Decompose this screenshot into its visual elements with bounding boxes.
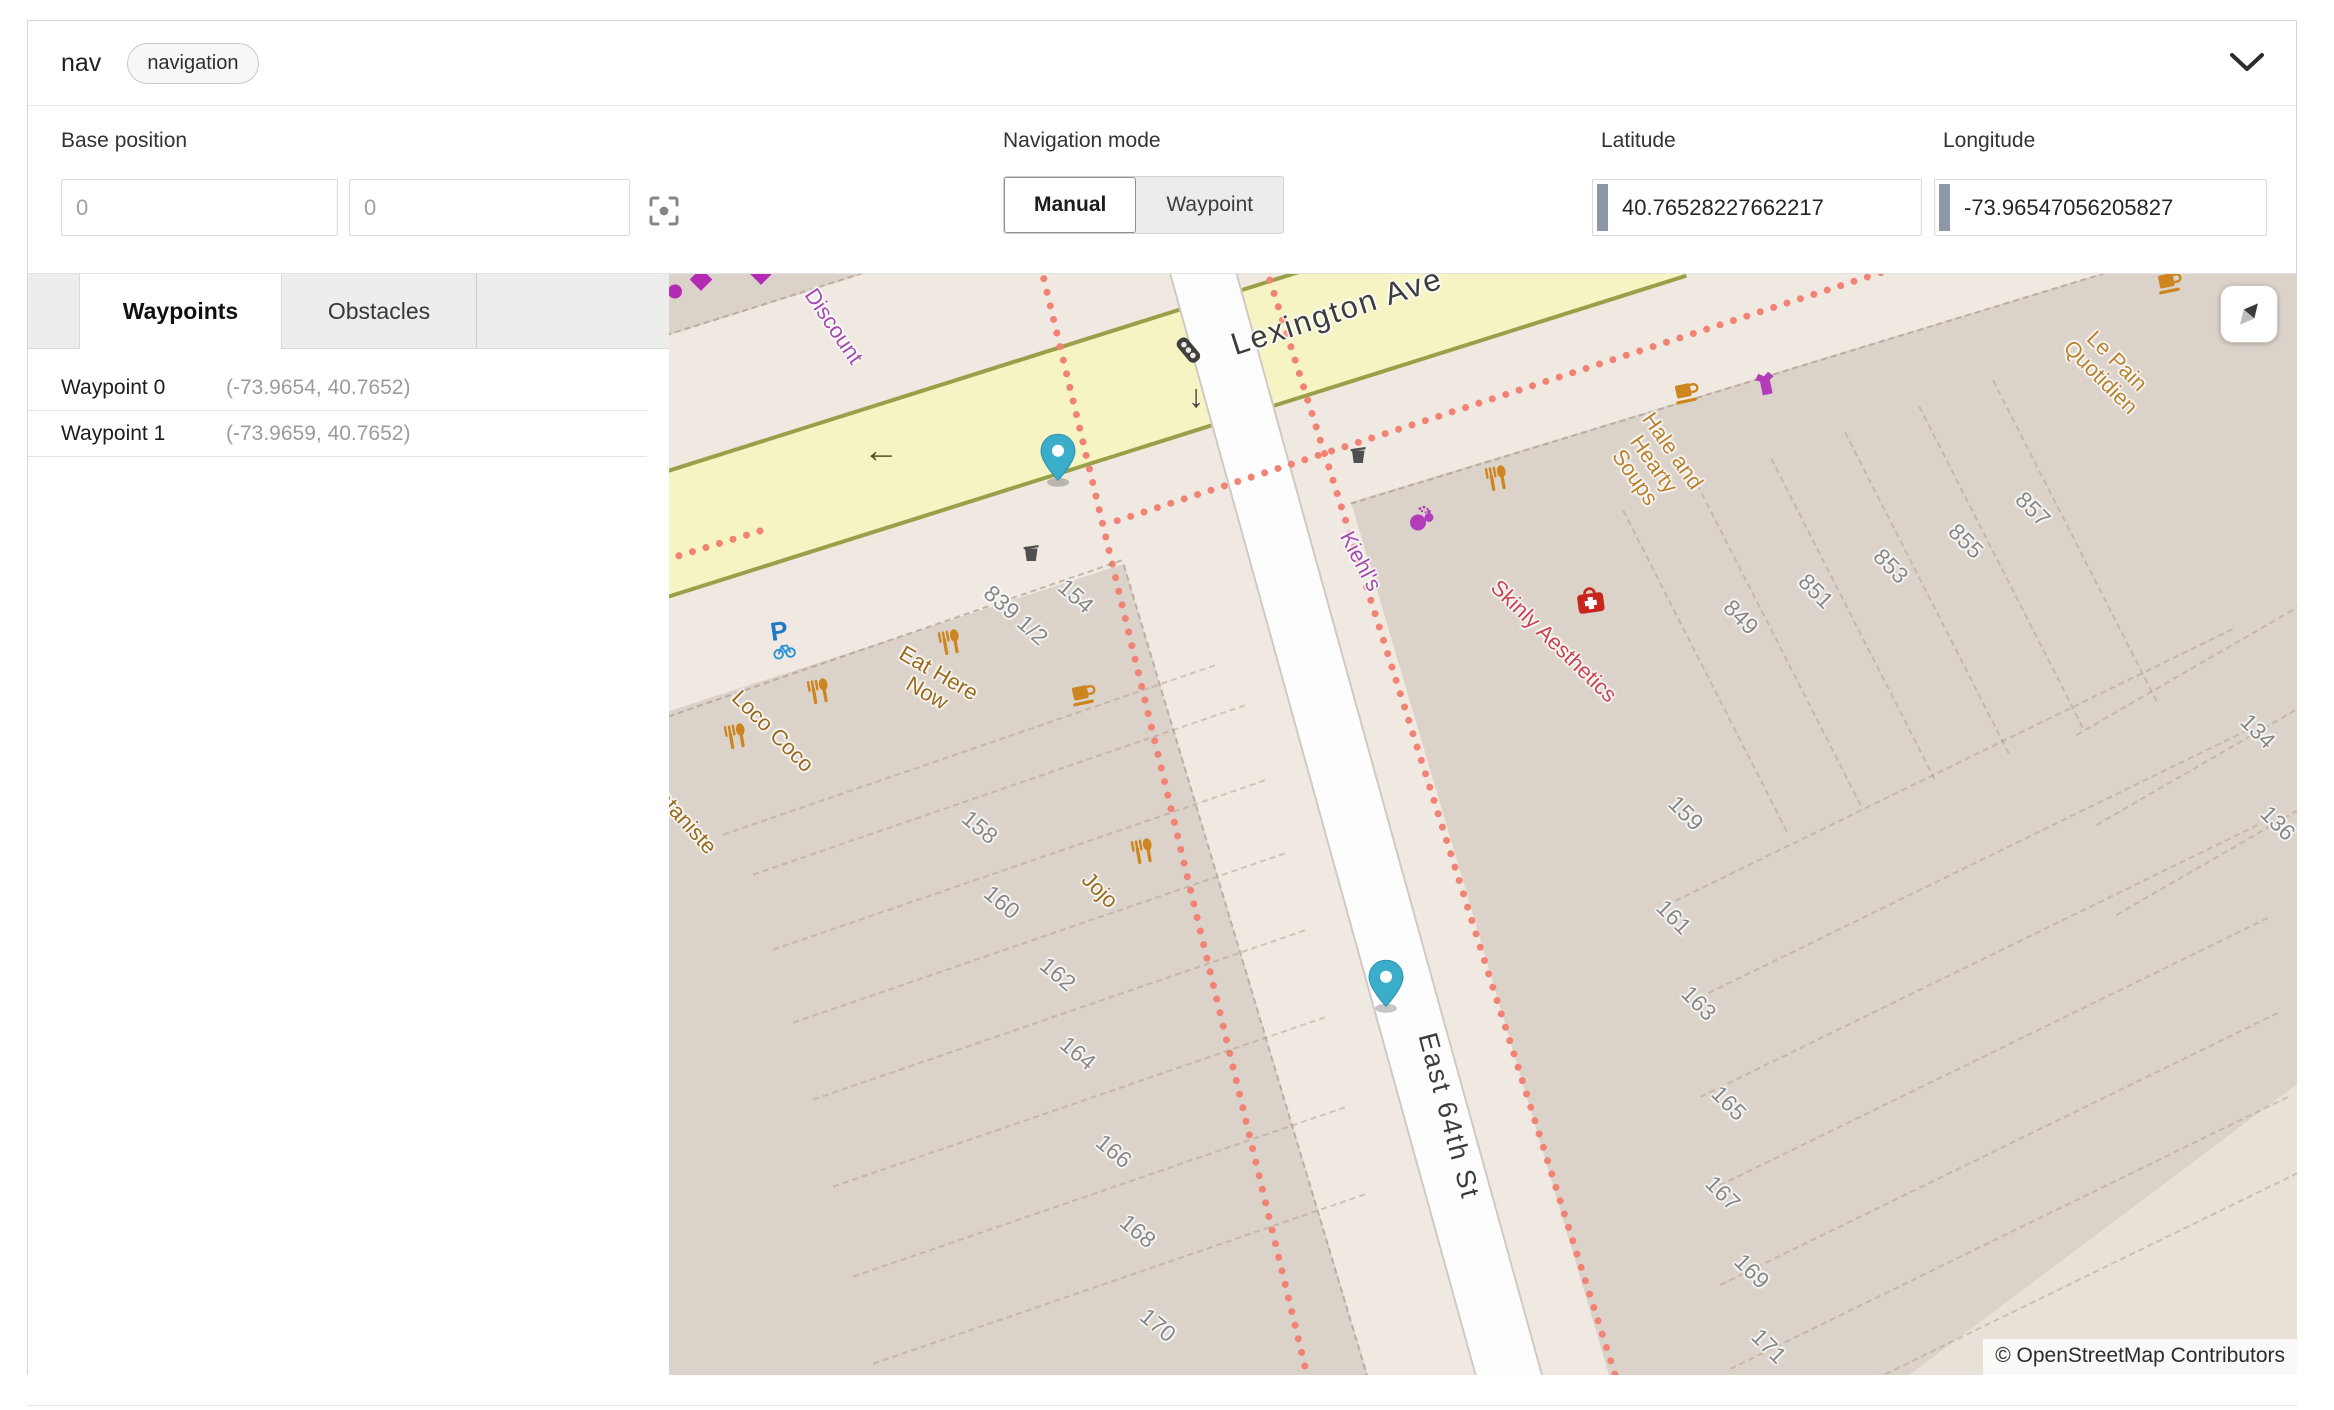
navigation-mode-toggle: Manual Waypoint — [1003, 176, 1284, 234]
restaurant-icon — [717, 719, 753, 759]
waypoint-list-item[interactable]: Waypoint 1 (-73.9659, 40.7652) — [28, 411, 647, 457]
restaurant-icon — [1478, 461, 1514, 501]
chevron-down-icon — [2229, 52, 2265, 74]
cosmetics-icon — [1408, 505, 1440, 538]
oneway-arrow-icon: ↓ — [1188, 380, 1204, 412]
map-canvas[interactable]: Lexington AveEast 64th StDiscountKiehl's… — [669, 274, 2297, 1375]
tab-waypoints[interactable]: Waypoints — [79, 274, 282, 349]
tab-spacer — [28, 274, 79, 348]
base-position-x-input[interactable] — [62, 180, 337, 235]
crosshair-icon — [647, 194, 681, 228]
card-header: nav navigation — [28, 21, 2296, 106]
compass-button[interactable] — [2220, 285, 2278, 343]
navigation-badge: navigation — [127, 43, 258, 84]
toolbar: Base position Navigation mode — [28, 106, 2296, 274]
latitude-label: Latitude — [1601, 129, 1676, 153]
navigation-mode-label: Navigation mode — [1003, 129, 1161, 153]
content-row: Waypoints Obstacles Waypoint 0 (-73.9654… — [28, 274, 2296, 1375]
waste-basket-icon — [1021, 544, 1041, 569]
shop-marker-icon — [748, 274, 774, 292]
shop-marker-icon — [688, 274, 714, 298]
longitude-field[interactable] — [1934, 179, 2267, 236]
waypoint-name: Waypoint 0 — [61, 376, 226, 400]
shop-marker-icon — [669, 284, 683, 305]
base-position-y-input[interactable] — [350, 180, 629, 235]
latitude-field[interactable] — [1592, 179, 1922, 236]
nav-panel-page: nav navigation Base position — [0, 0, 2334, 1410]
tab-obstacles[interactable]: Obstacles — [282, 274, 477, 348]
latitude-drag-handle[interactable] — [1597, 184, 1608, 231]
restaurant-icon — [800, 674, 836, 714]
cafe-icon — [1068, 680, 1102, 716]
svg-text:P: P — [768, 617, 789, 647]
restaurant-icon — [1124, 834, 1160, 874]
next-panel-divider — [27, 1405, 2298, 1406]
page-title: nav — [61, 49, 101, 78]
oneway-arrow-icon: ← — [863, 432, 899, 468]
longitude-drag-handle[interactable] — [1939, 184, 1950, 231]
latitude-input[interactable] — [1608, 180, 1921, 235]
waypoint-name: Waypoint 1 — [61, 422, 226, 446]
nav-card: nav navigation Base position — [27, 20, 2297, 1375]
set-base-position-button[interactable] — [646, 194, 682, 230]
base-position-y-field[interactable] — [349, 179, 630, 236]
bicycle-parking-icon: P — [766, 617, 800, 667]
base-position-x-field[interactable] — [61, 179, 338, 236]
waypoint-list: Waypoint 0 (-73.9654, 40.7652) Waypoint … — [28, 349, 669, 457]
waypoint-coords: (-73.9659, 40.7652) — [226, 422, 410, 446]
waypoint-coords: (-73.9654, 40.7652) — [226, 376, 410, 400]
map-pin-0[interactable] — [1036, 431, 1080, 492]
mode-manual-button[interactable]: Manual — [1004, 177, 1136, 233]
map-attribution: © OpenStreetMap Contributors — [1983, 1339, 2297, 1375]
map-pin-1[interactable] — [1364, 957, 1408, 1018]
longitude-input[interactable] — [1950, 180, 2266, 235]
longitude-label: Longitude — [1943, 129, 2035, 153]
poi-label: Discount — [800, 284, 867, 368]
collapse-panel-button[interactable] — [2228, 51, 2266, 75]
tab-bar: Waypoints Obstacles — [28, 274, 669, 349]
base-position-label: Base position — [61, 129, 187, 153]
compass-needle-icon — [2234, 299, 2264, 329]
waypoints-panel: Waypoints Obstacles Waypoint 0 (-73.9654… — [28, 274, 669, 1375]
cafe-icon — [1671, 378, 1705, 414]
restaurant-icon — [931, 625, 967, 665]
mode-waypoint-button[interactable]: Waypoint — [1136, 177, 1283, 233]
waypoint-list-item[interactable]: Waypoint 0 (-73.9654, 40.7652) — [28, 365, 647, 411]
waste-basket-icon — [1348, 446, 1368, 471]
clinic-icon — [1573, 584, 1610, 623]
